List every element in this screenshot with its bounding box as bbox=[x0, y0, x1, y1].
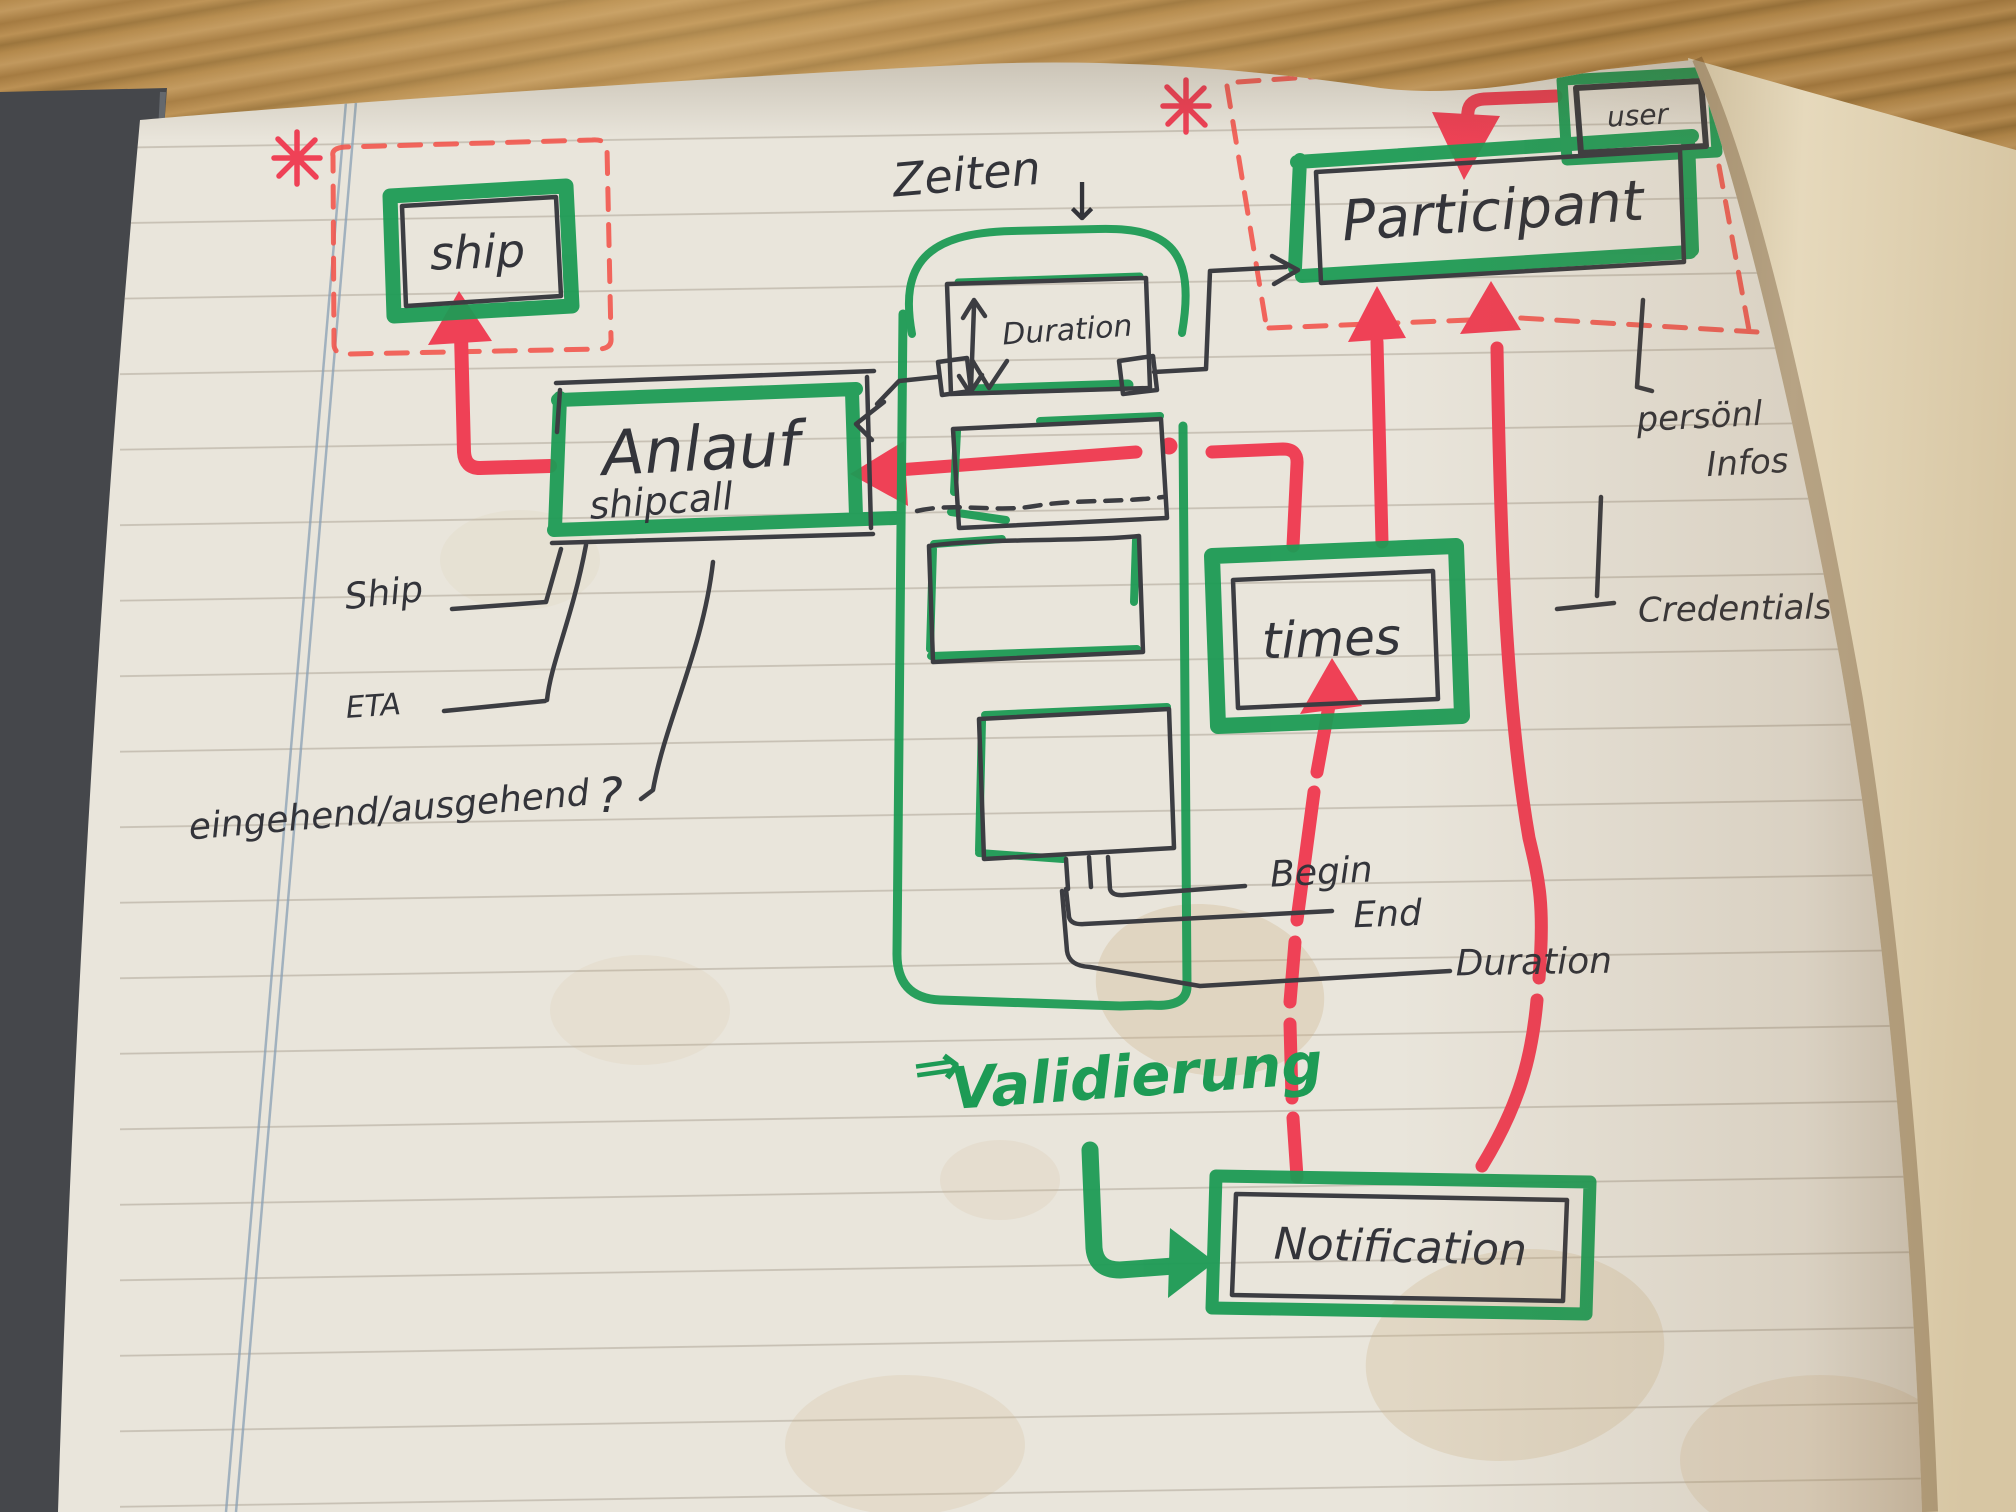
question-mark-label: ? bbox=[597, 768, 622, 824]
arrow-times-to-participant bbox=[1377, 342, 1382, 542]
begin-attr-label: Begin bbox=[1269, 849, 1374, 895]
ship-entity-label: ship bbox=[429, 223, 526, 280]
ship-attr-label: Ship bbox=[343, 569, 425, 618]
notebook-photo: ship Anlauf shipcall Duration Participan… bbox=[0, 0, 2016, 1512]
times-entity-label: times bbox=[1261, 608, 1402, 671]
sketch-canvas: ship Anlauf shipcall Duration Participan… bbox=[0, 0, 2016, 1512]
down-arrow-icon: ↓ bbox=[1060, 173, 1104, 233]
eta-attr-label: ETA bbox=[345, 687, 402, 726]
